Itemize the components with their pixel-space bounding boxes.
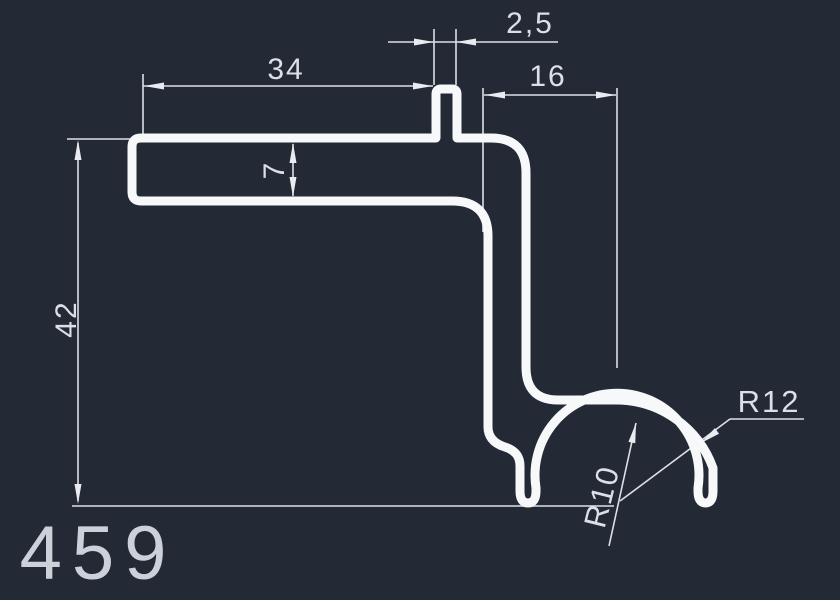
- inner-radius-label: R10: [577, 462, 626, 531]
- dim-right-offset-label: 16: [529, 60, 566, 93]
- technical-drawing: 42 34 2,5 16: [0, 0, 840, 600]
- arrowhead-right: [456, 39, 476, 46]
- dim-top-width-label: 34: [267, 53, 304, 86]
- dimension-inner-radius-r10: R10: [577, 422, 639, 546]
- arrowhead: [628, 422, 639, 443]
- arrowhead-up: [290, 143, 297, 163]
- outer-radius-label: R12: [738, 384, 801, 419]
- dim-tab-width-label: 2,5: [506, 7, 554, 40]
- dimension-right-offset-16: 16: [483, 60, 617, 368]
- arrowhead-left: [485, 92, 505, 99]
- dim-flange-thickness-label: 7: [258, 161, 291, 180]
- dimension-flange-thickness-7: 7: [258, 143, 297, 197]
- dimension-top-width-34: 34: [143, 53, 433, 134]
- arrowhead-right: [596, 92, 616, 99]
- profile-outline: [132, 89, 713, 503]
- cad-drawing-canvas[interactable]: 42 34 2,5 16: [0, 0, 840, 600]
- arrowhead-up: [75, 140, 82, 160]
- arrowhead-left: [144, 83, 164, 90]
- part-number-label: 459: [20, 511, 177, 596]
- arrowhead-left: [414, 39, 434, 46]
- arrowhead-down: [75, 484, 82, 504]
- arrowhead-right: [413, 83, 433, 90]
- dim-total-height-label: 42: [50, 300, 83, 337]
